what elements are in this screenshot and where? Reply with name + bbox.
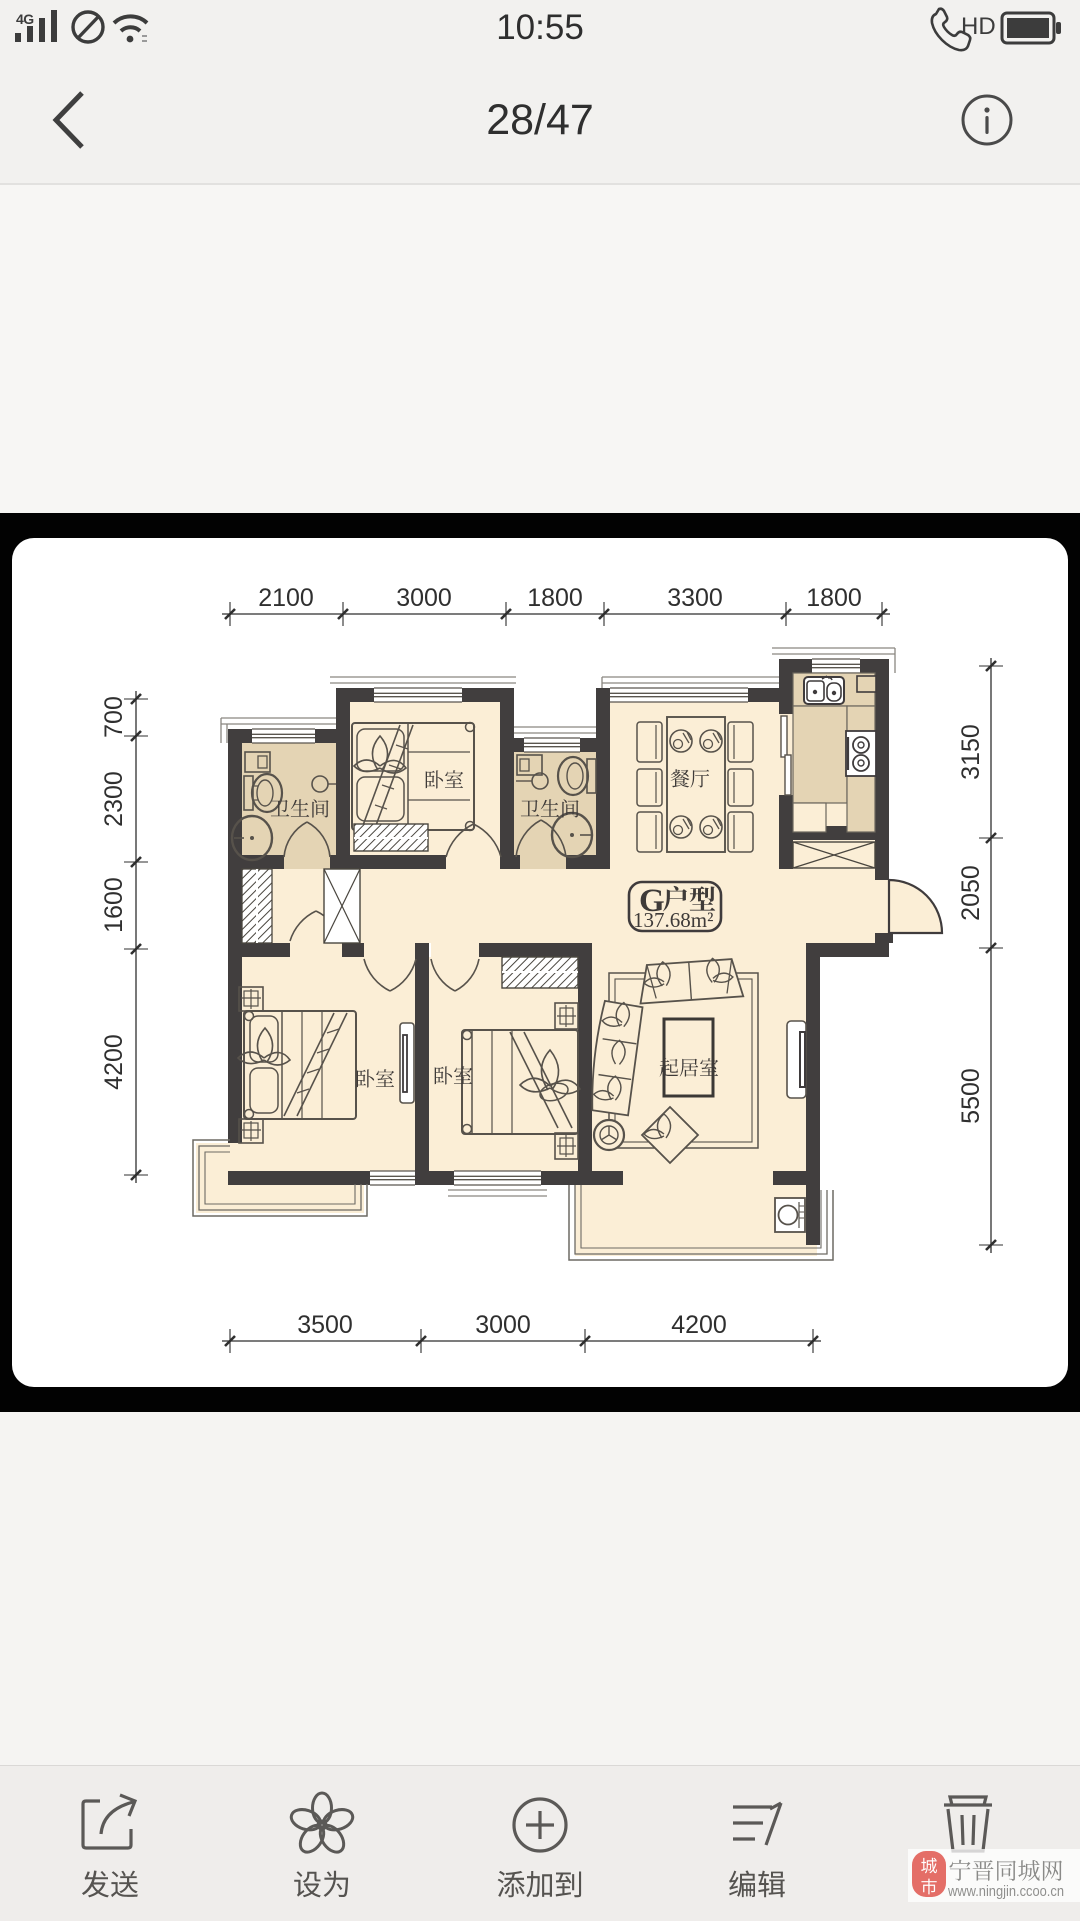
svg-text:3150: 3150 bbox=[957, 724, 985, 780]
svg-text:2050: 2050 bbox=[957, 865, 985, 921]
svg-text:4G: 4G bbox=[16, 11, 34, 27]
svg-text:3000: 3000 bbox=[475, 1311, 531, 1339]
svg-text:1800: 1800 bbox=[806, 584, 862, 612]
svg-text:4200: 4200 bbox=[671, 1311, 727, 1339]
svg-text:1800: 1800 bbox=[527, 584, 583, 612]
svg-text:137.68m²: 137.68m² bbox=[633, 908, 713, 932]
svg-text:3500: 3500 bbox=[297, 1311, 353, 1339]
svg-text:1600: 1600 bbox=[100, 877, 128, 933]
svg-text:700: 700 bbox=[100, 696, 128, 738]
svg-text:2100: 2100 bbox=[258, 584, 314, 612]
svg-text:HD: HD bbox=[961, 13, 996, 40]
svg-text:5500: 5500 bbox=[957, 1068, 985, 1124]
svg-text:3300: 3300 bbox=[667, 584, 723, 612]
svg-text:4200: 4200 bbox=[100, 1034, 128, 1090]
svg-text:3000: 3000 bbox=[396, 584, 452, 612]
svg-text:2300: 2300 bbox=[100, 771, 128, 827]
svg-text:www.ningjin.ccoo.cn: www.ningjin.ccoo.cn bbox=[947, 1883, 1064, 1900]
